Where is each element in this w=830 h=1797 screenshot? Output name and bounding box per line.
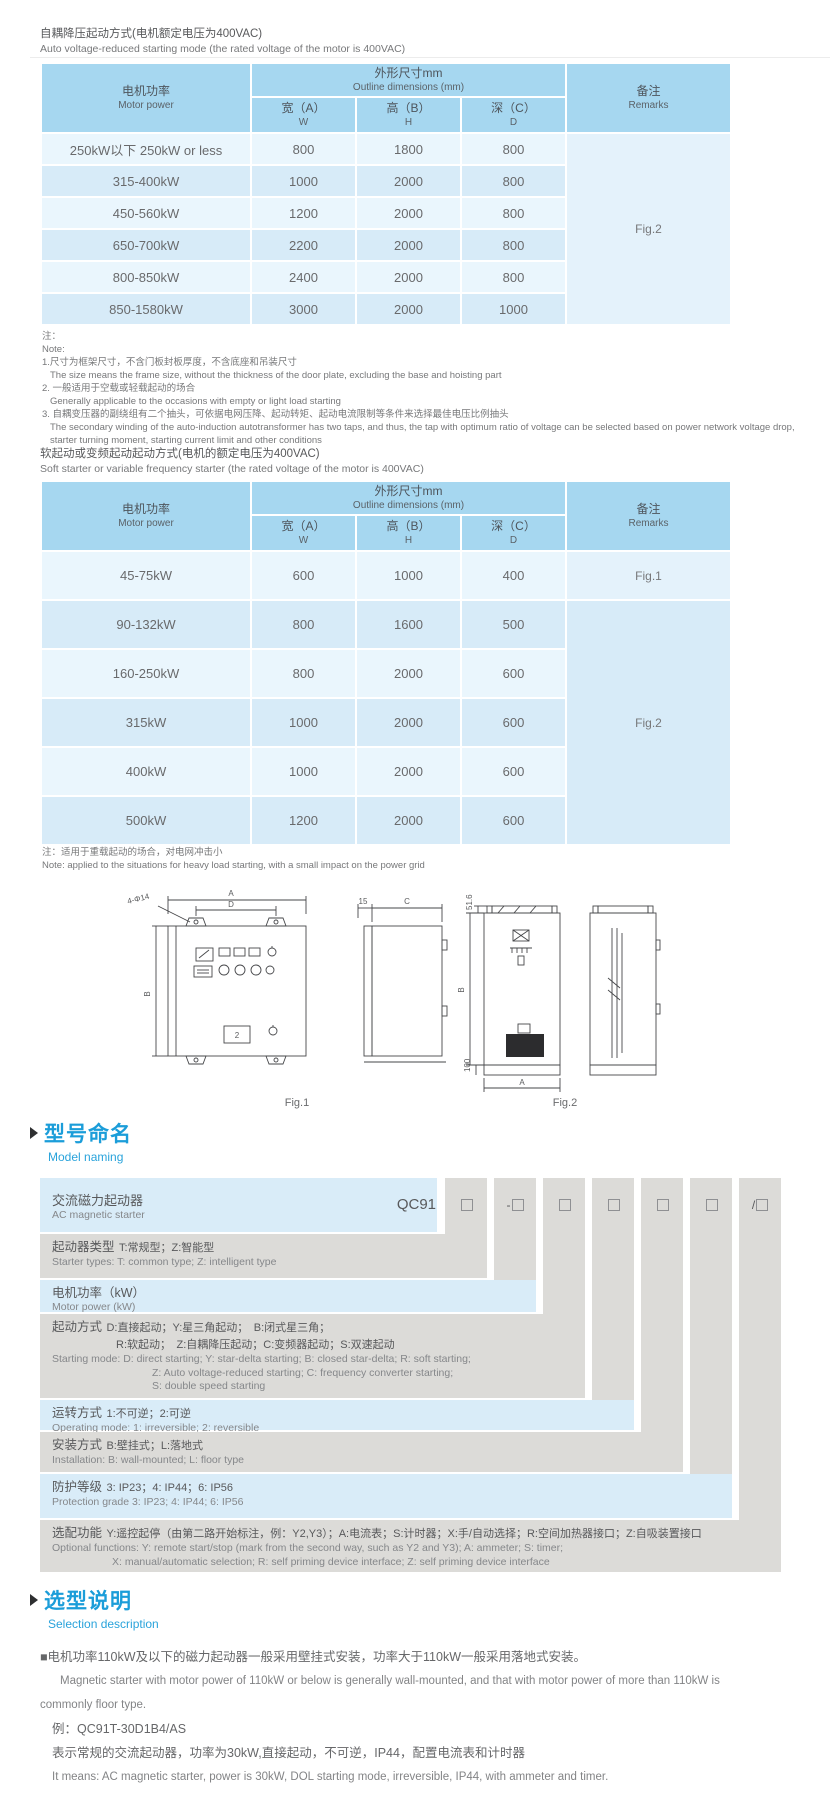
fig2-dim-b-label: B <box>457 987 466 992</box>
code-box-icon <box>608 1199 620 1211</box>
table-row: 90-132kW8001600500Fig.2 <box>41 600 731 649</box>
code-box-icon <box>756 1199 768 1211</box>
cell-width: 2400 <box>251 261 356 293</box>
header-motor-power: 电机功率 Motor power <box>41 63 251 133</box>
model-row-operating-mode: 运转方式 1:不可逆；2:可逆 Operating mode: 1: irrev… <box>40 1400 634 1430</box>
code-box-icon <box>461 1199 473 1211</box>
code-slot <box>543 1178 585 1232</box>
fig1-dim-d-label: D <box>228 900 234 909</box>
cell-depth: 600 <box>461 796 566 845</box>
figure1-side-view <box>358 904 447 1062</box>
cell-height: 2000 <box>356 747 461 796</box>
product-name-zh: 交流磁力起动器 <box>52 1192 437 1209</box>
cell-height: 2000 <box>356 165 461 197</box>
note1-label-en: Note: <box>42 343 795 356</box>
code-slot <box>592 1178 634 1232</box>
note1: 注： Note: 1.尺寸为框架尺寸，不含门板封板厚度，不含底座和吊装尺寸 Th… <box>42 330 795 447</box>
datasheet-page: 自耦降压起动方式(电机额定电压为400VAC) Auto voltage-red… <box>0 0 830 1797</box>
model-naming-heading-zh: 型号命名 <box>44 1118 132 1148</box>
fig1-holes-label: 4-Φ14 <box>126 892 150 906</box>
cell-width: 1000 <box>251 698 356 747</box>
header-width: 宽（A） W <box>251 515 356 551</box>
cell-width: 1000 <box>251 165 356 197</box>
figures-drawing: A D 4-Φ14 B 2 15 C <box>0 878 830 1116</box>
cell-depth: 600 <box>461 698 566 747</box>
cell-motor-power: 400kW <box>41 747 251 796</box>
fig1-dim-c-label: C <box>404 897 410 906</box>
model-row-protection-grade: 防护等级 3: IP23；4: IP44；6: IP56 Protection … <box>40 1474 732 1518</box>
model-naming-heading-en: Model naming <box>48 1150 123 1164</box>
cell-motor-power: 800-850kW <box>41 261 251 293</box>
cell-width: 600 <box>251 551 356 600</box>
triangle-marker-icon <box>30 1594 38 1606</box>
code-box-icon <box>512 1199 524 1211</box>
figure2-side-view <box>590 906 660 1075</box>
cell-height: 2000 <box>356 229 461 261</box>
note1-label-zh: 注： <box>42 330 795 343</box>
fig2-dim-base-label: 100 <box>463 1058 472 1072</box>
fig1-panel-num: 2 <box>235 1031 240 1040</box>
cell-width: 800 <box>251 649 356 698</box>
cell-height: 2000 <box>356 698 461 747</box>
cell-depth: 500 <box>461 600 566 649</box>
header-motor-zh: 电机功率 <box>42 84 250 99</box>
cell-height: 2000 <box>356 649 461 698</box>
header-remarks: 备注 Remarks <box>566 481 731 551</box>
cell-depth: 800 <box>461 229 566 261</box>
cell-depth: 600 <box>461 649 566 698</box>
triangle-marker-icon <box>30 1127 38 1139</box>
model-naming-table: 交流磁力起动器 AC magnetic starter QC91 - / 起动器… <box>40 1178 790 1572</box>
cell-motor-power: 650-700kW <box>41 229 251 261</box>
divider-line <box>30 57 830 58</box>
header-remark-en: Remarks <box>567 99 730 112</box>
header-depth: 深（C） D <box>461 97 566 133</box>
note2-zh: 注：适用于重载起动的场合，对电网冲击小 <box>42 846 425 859</box>
cell-depth: 800 <box>461 165 566 197</box>
code-column-strip <box>739 1178 781 1572</box>
header-motor-power: 电机功率 Motor power <box>41 481 251 551</box>
table1-title-zh: 自耦降压起动方式(电机额定电压为400VAC) <box>40 27 405 42</box>
cell-height: 2000 <box>356 197 461 229</box>
cell-width: 1200 <box>251 197 356 229</box>
cell-motor-power: 450-560kW <box>41 197 251 229</box>
table2-title-en: Soft starter or variable frequency start… <box>40 462 424 476</box>
cell-depth: 1000 <box>461 293 566 325</box>
model-row-motor-power: 电机功率（kW） Motor power (kW) <box>40 1280 536 1312</box>
cell-width: 1000 <box>251 747 356 796</box>
cell-motor-power: 250kW以下 250kW or less <box>41 133 251 165</box>
code-box-icon <box>706 1199 718 1211</box>
note1-item2-zh: 2. 一般适用于空载或轻载起动的场合 <box>42 382 795 395</box>
selection-heading-zh: 选型说明 <box>44 1585 132 1615</box>
cell-width: 800 <box>251 133 356 165</box>
table-row: 250kW以下 250kW or less8001800800Fig.2 <box>41 133 731 165</box>
cell-motor-power: 500kW <box>41 796 251 845</box>
code-box-icon <box>559 1199 571 1211</box>
model-row-product: 交流磁力起动器 AC magnetic starter <box>40 1178 437 1232</box>
selection-heading: 选型说明 <box>30 1585 132 1615</box>
cell-height: 2000 <box>356 261 461 293</box>
fig1-dim-off-label: 15 <box>359 897 368 906</box>
note2-en: Note: applied to the situations for heav… <box>42 859 425 872</box>
table1-body: 250kW以下 250kW or less8001800800Fig.2315-… <box>41 133 731 325</box>
cell-remark: Fig.1 <box>566 551 731 600</box>
selection-example-zh: 表示常规的交流起动器，功率为30kW,直接起动，不可逆，IP44，配置电流表和计… <box>40 1741 800 1765</box>
code-slot: / <box>739 1178 781 1232</box>
cell-motor-power: 315-400kW <box>41 165 251 197</box>
selection-heading-en: Selection description <box>48 1617 159 1631</box>
selection-example: 例：QC91T-30D1B4/AS <box>40 1717 800 1741</box>
fig2-dim-a-label: A <box>519 1078 525 1087</box>
note1-item2-en: Generally applicable to the occasions wi… <box>42 395 795 408</box>
cell-motor-power: 160-250kW <box>41 649 251 698</box>
table1-header: 电机功率 Motor power 外形尺寸mm Outline dimensio… <box>41 63 731 133</box>
code-box-icon <box>657 1199 669 1211</box>
cell-depth: 800 <box>461 261 566 293</box>
code-slot <box>641 1178 683 1232</box>
model-code-prefix: QC91 <box>388 1178 436 1232</box>
header-dims-en: Outline dimensions (mm) <box>252 81 565 94</box>
note1-item3-en1: The secondary winding of the auto-induct… <box>42 421 795 434</box>
selection-p1-en1: Magnetic starter with motor power of 110… <box>40 1669 800 1693</box>
header-height: 高（B） H <box>356 97 461 133</box>
soft-starter-table: 电机功率 Motor power 外形尺寸mm Outline dimensio… <box>40 480 732 846</box>
model-row-starting-mode: 起动方式 D:直接起动；Y:星三角起动； B:闭式星三角； R:软起动； Z:自… <box>40 1314 585 1398</box>
code-slot <box>445 1178 487 1232</box>
selection-p1-zh: ■电机功率110kW及以下的磁力起动器一般采用壁挂式安装，功率大于110kW一般… <box>40 1645 800 1669</box>
table2-title: 软起动或变频起动起动方式(电机的额定电压为400VAC) Soft starte… <box>40 447 424 476</box>
table2-title-zh: 软起动或变频起动起动方式(电机的额定电压为400VAC) <box>40 447 424 462</box>
cell-depth: 600 <box>461 747 566 796</box>
note2: 注：适用于重载起动的场合，对电网冲击小 Note: applied to the… <box>42 846 425 872</box>
model-row-optional-functions: 选配功能 Y:遥控起停（由第二路开始标注，例：Y2,Y3）；A:电流表；S:计时… <box>40 1520 781 1572</box>
model-naming-heading: 型号命名 <box>30 1118 132 1148</box>
cell-width: 2200 <box>251 229 356 261</box>
model-row-installation: 安装方式 B:壁挂式；L:落地式 Installation: B: wall-m… <box>40 1432 683 1472</box>
product-name-en: AC magnetic starter <box>52 1209 437 1223</box>
note1-item3-zh: 3. 自耦变压器的副绕组有二个抽头，可依据电网压降、起动转矩、起动电流限制等条件… <box>42 408 795 421</box>
cell-motor-power: 90-132kW <box>41 600 251 649</box>
cell-height: 2000 <box>356 796 461 845</box>
model-row-starter-type: 起动器类型 T:常规型；Z:智能型 Starter types: T: comm… <box>40 1234 487 1278</box>
cell-depth: 800 <box>461 133 566 165</box>
selection-body: ■电机功率110kW及以下的磁力起动器一般采用壁挂式安装，功率大于110kW一般… <box>40 1645 800 1789</box>
fig2-dim-top-label: 51.6 <box>465 894 474 910</box>
cell-height: 2000 <box>356 293 461 325</box>
note1-item1-en: The size means the frame size, without t… <box>42 369 795 382</box>
cell-depth: 400 <box>461 551 566 600</box>
header-remarks: 备注 Remarks <box>566 63 731 133</box>
header-motor-en: Motor power <box>42 99 250 112</box>
cell-height: 1000 <box>356 551 461 600</box>
code-slot <box>690 1178 732 1232</box>
fig1-dim-b-label: B <box>143 991 152 996</box>
cell-remark: Fig.2 <box>566 600 731 845</box>
header-remark-zh: 备注 <box>567 84 730 99</box>
cell-width: 3000 <box>251 293 356 325</box>
selection-p1-en2: commonly floor type. <box>40 1693 800 1717</box>
table1-title: 自耦降压起动方式(电机额定电压为400VAC) Auto voltage-red… <box>40 27 405 56</box>
note1-item1-zh: 1.尺寸为框架尺寸，不含门板封板厚度，不含底座和吊装尺寸 <box>42 356 795 369</box>
note1-item3-en2: starter turning moment, starting current… <box>42 434 795 447</box>
cell-height: 1600 <box>356 600 461 649</box>
cell-width: 800 <box>251 600 356 649</box>
header-dims-zh: 外形尺寸mm <box>252 66 565 81</box>
selection-example-en: It means: AC magnetic starter, power is … <box>40 1765 800 1789</box>
figure2-front-view <box>466 906 560 1092</box>
figure1-front-view <box>152 896 306 1064</box>
code-slot: - <box>494 1178 536 1232</box>
header-outline-dims: 外形尺寸mm Outline dimensions (mm) <box>251 481 566 515</box>
fig2-caption: Fig.2 <box>553 1097 577 1109</box>
cell-width: 1200 <box>251 796 356 845</box>
cell-motor-power: 45-75kW <box>41 551 251 600</box>
header-depth: 深（C） D <box>461 515 566 551</box>
fig1-caption: Fig.1 <box>285 1097 309 1109</box>
table2-header: 电机功率 Motor power 外形尺寸mm Outline dimensio… <box>41 481 731 551</box>
cell-motor-power: 315kW <box>41 698 251 747</box>
header-height: 高（B） H <box>356 515 461 551</box>
table-row: 45-75kW6001000400Fig.1 <box>41 551 731 600</box>
cell-motor-power: 850-1580kW <box>41 293 251 325</box>
table1-title-en: Auto voltage-reduced starting mode (the … <box>40 42 405 56</box>
cell-remark: Fig.2 <box>566 133 731 325</box>
table2-body: 45-75kW6001000400Fig.190-132kW8001600500… <box>41 551 731 845</box>
cell-depth: 800 <box>461 197 566 229</box>
fig1-dim-a-label: A <box>228 889 234 898</box>
auto-voltage-table: 电机功率 Motor power 外形尺寸mm Outline dimensio… <box>40 62 732 326</box>
header-width: 宽（A） W <box>251 97 356 133</box>
header-outline-dims: 外形尺寸mm Outline dimensions (mm) <box>251 63 566 97</box>
cell-height: 1800 <box>356 133 461 165</box>
